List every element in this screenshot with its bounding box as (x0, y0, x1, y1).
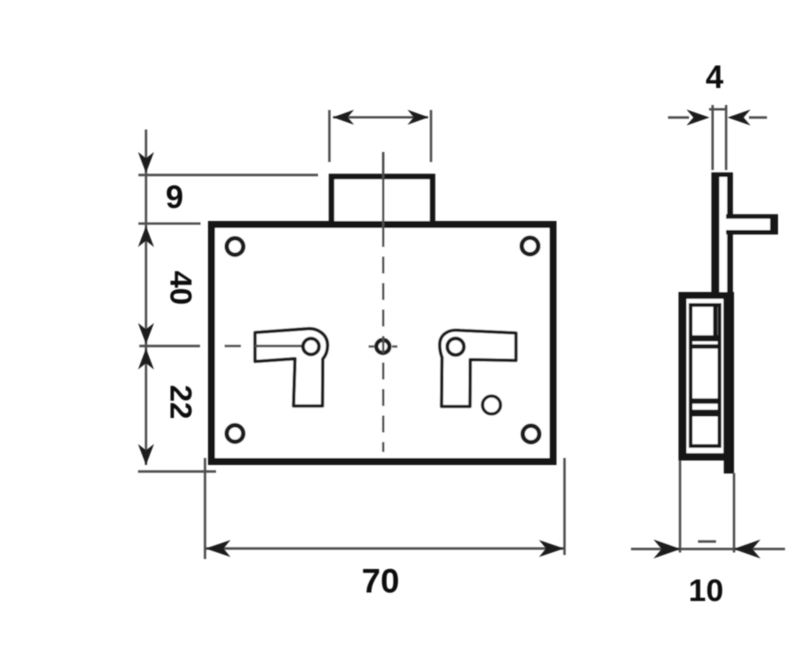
svg-text:40: 40 (164, 271, 199, 305)
svg-text:22: 22 (164, 385, 199, 419)
svg-text:9: 9 (166, 179, 184, 215)
svg-text:70: 70 (362, 563, 400, 601)
svg-text:4: 4 (706, 59, 724, 95)
svg-text:10: 10 (688, 572, 723, 608)
